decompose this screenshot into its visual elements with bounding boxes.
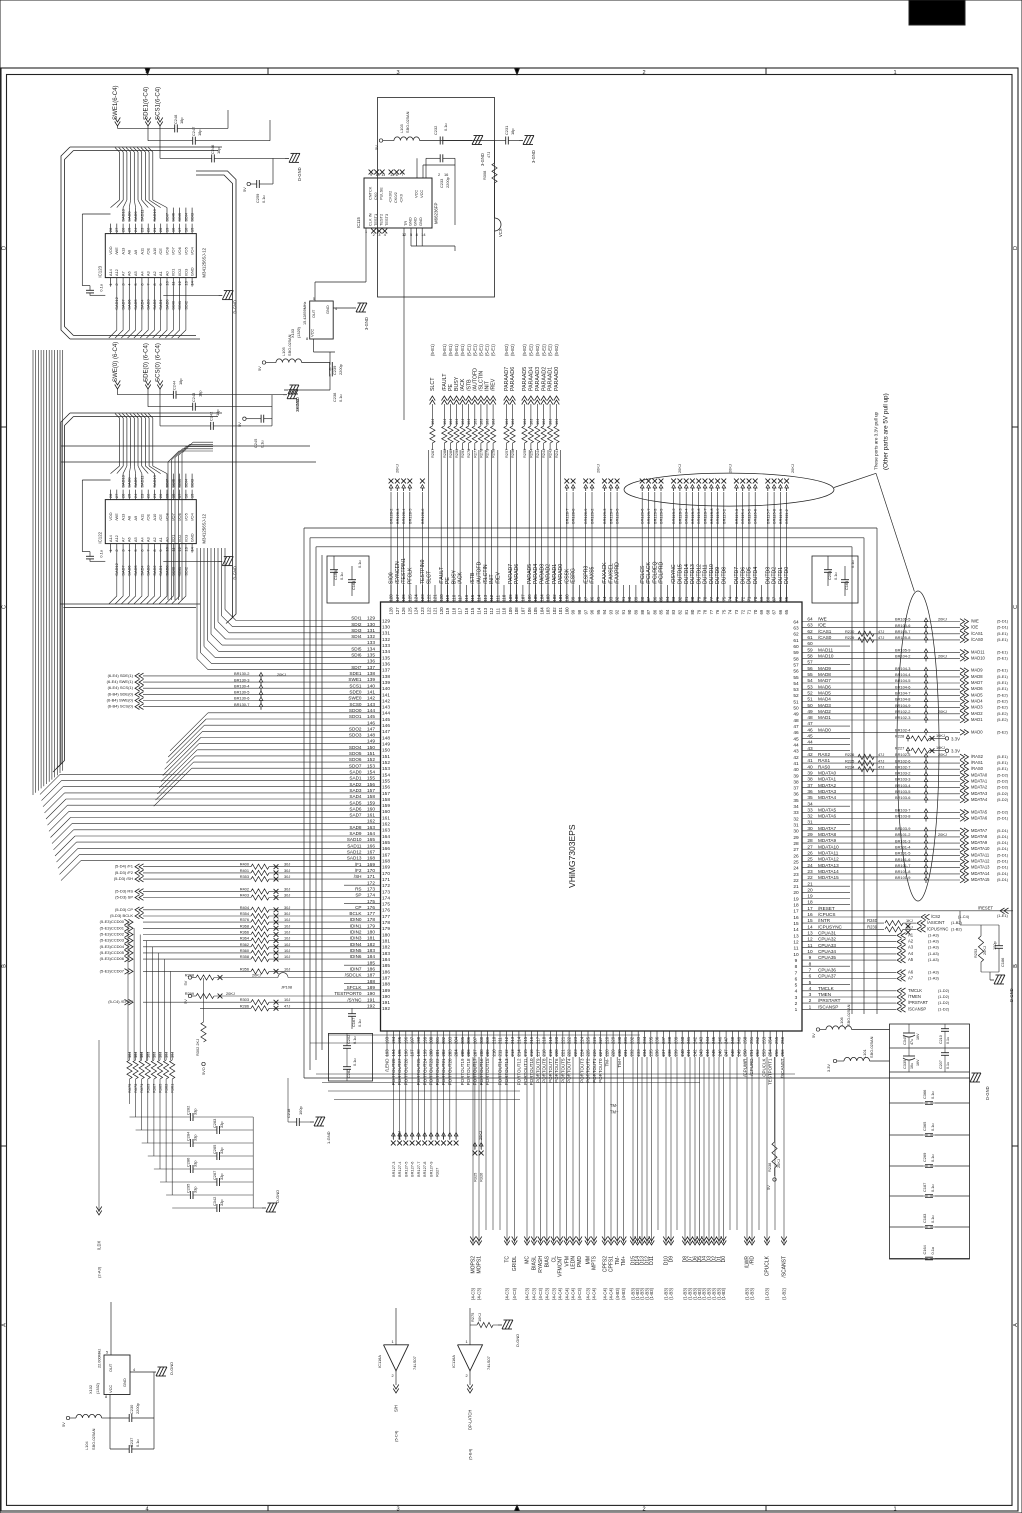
svg-text:(5-D3) CP: (5-D3) CP <box>115 907 133 912</box>
svg-text:/CSSK: /CSSK <box>564 568 570 584</box>
svg-text:/FAXSEL: /FAXSEL <box>608 563 614 584</box>
svg-text:D-GND: D-GND <box>169 1362 174 1375</box>
svg-text:34: 34 <box>793 804 799 810</box>
svg-text:33p: 33p <box>193 1187 198 1194</box>
svg-text:/CE: /CE <box>158 514 163 521</box>
svg-text:10J: 10J <box>466 419 471 425</box>
svg-text:20KJ: 20KJ <box>478 1131 483 1140</box>
svg-text:SDE1(6-C4): SDE1(6-C4) <box>143 87 150 120</box>
svg-text:PARAAD4: PARAAD4 <box>529 367 535 391</box>
svg-text:98: 98 <box>577 609 582 614</box>
svg-text:MAD4: MAD4 <box>971 699 983 704</box>
svg-text:L105: L105 <box>281 347 286 356</box>
svg-text:10J: 10J <box>284 942 290 947</box>
svg-text:CPUA32: CPUA32 <box>818 937 836 942</box>
svg-text:/SYNCEN: /SYNCEN <box>395 561 401 584</box>
svg-text:0.1u: 0.1u <box>261 195 266 203</box>
svg-text:CPUA37: CPUA37 <box>818 974 836 979</box>
svg-text:A12: A12 <box>114 269 119 276</box>
svg-text:PORTOUT6: PORTOUT6 <box>554 1058 559 1083</box>
svg-text:20KJ: 20KJ <box>727 464 732 473</box>
svg-text:A4: A4 <box>139 537 144 543</box>
svg-text:A8: A8 <box>127 516 132 521</box>
svg-text:(1-A3): (1-A3) <box>928 939 940 944</box>
svg-text:SLCT: SLCT <box>426 571 432 584</box>
svg-text:(1-A3): (1-A3) <box>928 957 940 962</box>
svg-text:R368: R368 <box>240 923 249 928</box>
svg-text:10J: 10J <box>510 419 515 425</box>
svg-text:(1-B2): (1-B2) <box>951 926 963 931</box>
svg-text:0.1u: 0.1u <box>443 123 448 131</box>
svg-text:(5-E1): (5-E1) <box>454 344 459 356</box>
svg-text:/ESRG: /ESRG <box>571 568 577 584</box>
svg-text:63: 63 <box>793 626 799 632</box>
svg-text:BR101-3: BR101-3 <box>895 838 910 843</box>
svg-text:SDO4: SDO4 <box>349 745 362 750</box>
svg-text:BR104-6: BR104-6 <box>895 684 910 689</box>
svg-text:67: 67 <box>772 609 777 614</box>
svg-text:CPUA33: CPUA33 <box>818 943 836 948</box>
svg-text:DUTD4: DUTD4 <box>753 567 759 584</box>
svg-text:A1: A1 <box>908 932 914 937</box>
svg-text:MAD0: MAD0 <box>818 727 831 732</box>
svg-text:SDO7: SDO7 <box>349 763 362 768</box>
svg-text:IC123: IC123 <box>97 265 102 277</box>
svg-text:BR115-6: BR115-6 <box>753 509 758 524</box>
svg-text:SWE1: SWE1 <box>348 677 362 682</box>
svg-text:VDD: VDD <box>108 246 113 254</box>
svg-text:C246: C246 <box>210 145 215 154</box>
svg-text:186: 186 <box>382 969 390 975</box>
svg-text:113: 113 <box>483 607 488 614</box>
svg-text:154: 154 <box>382 772 390 778</box>
svg-text:148: 148 <box>382 735 390 741</box>
svg-text:143: 143 <box>382 705 390 711</box>
svg-text:47u: 47u <box>910 1039 914 1045</box>
svg-text:SAD1: SAD1 <box>349 776 362 781</box>
svg-text:(5-E1): (5-E1) <box>460 344 465 356</box>
svg-text:(5-D3) SP: (5-D3) SP <box>115 895 133 900</box>
svg-text:18p: 18p <box>197 130 202 137</box>
svg-text:62: 62 <box>793 632 799 638</box>
svg-text:(1-A3): (1-A3) <box>928 945 940 950</box>
svg-text:R229: R229 <box>845 635 854 640</box>
svg-text:MAD6: MAD6 <box>818 684 831 689</box>
svg-text:R403: R403 <box>240 893 249 898</box>
svg-text:C186: C186 <box>1000 958 1005 967</box>
svg-text:SP: SP <box>355 893 361 898</box>
svg-text:BR102-3: BR102-3 <box>895 715 910 720</box>
svg-text:TM-: TM- <box>604 1058 609 1066</box>
svg-text:9: 9 <box>795 958 798 964</box>
svg-text:PARAAD0: PARAAD0 <box>554 367 560 391</box>
svg-text:SCS1(6-C4): SCS1(6-C4) <box>155 87 162 120</box>
svg-text:10KJ: 10KJ <box>936 733 945 738</box>
svg-text:DUTD3: DUTD3 <box>765 567 771 584</box>
svg-text:/PRSTART: /PRSTART <box>908 1000 929 1005</box>
svg-text:10J: 10J <box>158 1052 163 1058</box>
svg-text:/WE: /WE <box>114 247 119 255</box>
svg-text:R224: R224 <box>845 764 855 769</box>
svg-text:(4-C4): (4-C4) <box>592 1287 597 1300</box>
svg-text:1KJ: 1KJ <box>906 918 913 923</box>
svg-text:MAD0: MAD0 <box>971 729 983 734</box>
svg-text:/PCLACK: /PCLACK <box>646 562 652 584</box>
svg-text:84: 84 <box>665 609 670 614</box>
svg-text:/FAXACK: /FAXACK <box>602 562 608 584</box>
svg-text:A8: A8 <box>127 250 132 255</box>
svg-text:(5-E3)CCD00: (5-E3)CCD00 <box>100 919 125 924</box>
svg-text:68: 68 <box>765 609 770 614</box>
svg-text:(5-E2): (5-E2) <box>522 344 527 356</box>
svg-text:SAD13: SAD13 <box>347 856 362 861</box>
svg-text:BR103-6: BR103-6 <box>895 795 910 800</box>
svg-text:MDATA6: MDATA6 <box>971 816 988 821</box>
svg-text:MPTS: MPTS <box>592 1255 598 1270</box>
svg-text:RYASH: RYASH <box>538 1256 544 1273</box>
svg-text:SAD3: SAD3 <box>349 788 362 793</box>
svg-text:30J: 30J <box>284 874 290 879</box>
svg-text:A1: A1 <box>158 271 163 276</box>
svg-text:MDATA11: MDATA11 <box>818 851 839 856</box>
svg-text:5: 5 <box>795 983 798 989</box>
svg-text:100: 100 <box>564 607 569 615</box>
svg-text:R228: R228 <box>895 733 904 738</box>
svg-text:4: 4 <box>145 70 148 76</box>
svg-text:(5-E2): (5-E2) <box>548 344 553 356</box>
svg-text:SCS1: SCS1 <box>349 683 362 688</box>
svg-text:120: 120 <box>439 607 444 615</box>
svg-text:(1-E1): (1-E1) <box>997 913 1009 918</box>
svg-text:110: 110 <box>502 607 507 614</box>
svg-text:(5-E3)CCD02: (5-E3)CCD02 <box>100 932 125 937</box>
svg-text:10J: 10J <box>133 1052 138 1058</box>
svg-text:1: 1 <box>795 1007 798 1013</box>
svg-text:R253: R253 <box>973 949 978 958</box>
svg-text:(5-D1): (5-D1) <box>997 877 1009 882</box>
svg-text:DUTD15: DUTD15 <box>678 564 684 584</box>
svg-text:179: 179 <box>382 926 390 932</box>
svg-text:BR115-2: BR115-2 <box>721 509 726 524</box>
svg-text:/RAS1: /RAS1 <box>971 760 984 765</box>
svg-text:R366: R366 <box>240 930 249 935</box>
svg-text:1-GND: 1-GND <box>326 1131 331 1144</box>
svg-text:IC116A: IC116A <box>377 1355 382 1368</box>
svg-text:58: 58 <box>793 656 799 662</box>
svg-text:OUT: OUT <box>311 309 316 318</box>
svg-text:112: 112 <box>489 607 494 614</box>
svg-text:(1-B2): (1-B2) <box>951 920 963 925</box>
svg-text:18p: 18p <box>216 148 221 155</box>
svg-text:BR129-3: BR129-3 <box>602 509 607 524</box>
svg-text:(6-E4) SWE(1): (6-E4) SWE(1) <box>107 679 134 684</box>
svg-text:/STB: /STB <box>470 572 476 584</box>
svg-text:BR129-4: BR129-4 <box>608 508 613 524</box>
svg-text:BR103-2: BR103-2 <box>895 771 910 776</box>
svg-text:/FAULT: /FAULT <box>439 567 445 584</box>
svg-text:10J: 10J <box>139 1052 144 1058</box>
svg-text:R358: R358 <box>240 954 249 959</box>
svg-text:R289: R289 <box>448 449 453 458</box>
svg-text:10J: 10J <box>164 1052 169 1058</box>
svg-text:(5-D1): (5-D1) <box>997 816 1009 821</box>
svg-text:A5: A5 <box>133 537 138 542</box>
svg-text:53: 53 <box>793 687 799 693</box>
svg-text:33p: 33p <box>193 1161 198 1168</box>
svg-text:VFMCNT: VFMCNT <box>558 1256 564 1277</box>
svg-text:0.1u: 0.1u <box>135 1439 140 1447</box>
svg-text:(5-E2): (5-E2) <box>997 717 1009 722</box>
svg-text:SAD9: SAD9 <box>349 831 362 836</box>
svg-text:M341256SJ-12: M341256SJ-12 <box>201 513 206 543</box>
svg-text:DUTD8: DUTD8 <box>721 567 727 584</box>
svg-text:C283: C283 <box>212 1119 217 1128</box>
svg-text:3-GND: 3-GND <box>531 150 536 163</box>
svg-text:R302 2KJ: R302 2KJ <box>195 1039 200 1056</box>
svg-text:R303: R303 <box>240 997 249 1002</box>
svg-text:7: 7 <box>795 970 798 976</box>
svg-text:I/O8: I/O8 <box>164 513 169 520</box>
svg-text:R225: R225 <box>845 758 854 763</box>
svg-text:138: 138 <box>382 674 390 680</box>
svg-text:SAD0: SAD0 <box>349 770 362 775</box>
svg-text:139: 139 <box>382 680 390 686</box>
svg-text:(5-E2): (5-E2) <box>529 344 534 356</box>
svg-text:125: 125 <box>407 607 412 615</box>
svg-text:C237: C237 <box>129 1438 134 1447</box>
svg-text:SDE(0) (6-C4): SDE(0) (6-C4) <box>143 343 150 382</box>
svg-text:30J: 30J <box>284 886 290 891</box>
svg-text:R255: R255 <box>522 449 527 458</box>
svg-text:R258: R258 <box>491 449 496 458</box>
svg-text:106: 106 <box>527 607 532 615</box>
svg-text:131: 131 <box>382 631 390 637</box>
svg-text:92: 92 <box>615 609 620 614</box>
svg-text:BR128-6: BR128-6 <box>420 509 425 524</box>
svg-text:A: A <box>1 1323 7 1327</box>
svg-text:(1-B3): (1-B3) <box>750 1287 755 1299</box>
svg-text:IDIN1: IDIN1 <box>350 923 362 928</box>
svg-text:BR130-5: BR130-5 <box>234 690 249 695</box>
svg-text:/ACK: /ACK <box>460 378 466 391</box>
svg-text:155: 155 <box>382 779 390 785</box>
svg-text:10J: 10J <box>478 419 483 425</box>
svg-text:D-GND: D-GND <box>232 566 237 580</box>
svg-text:10J: 10J <box>548 419 553 425</box>
svg-text:135: 135 <box>382 655 390 661</box>
svg-text:C245: C245 <box>253 439 258 448</box>
svg-text:PORTOUT7: PORTOUT7 <box>548 1058 553 1083</box>
svg-text:C282: C282 <box>186 1106 191 1115</box>
svg-text:SAD12: SAD12 <box>347 850 362 855</box>
svg-text:MDATA8: MDATA8 <box>971 834 988 839</box>
svg-text:/CAS0: /CAS0 <box>971 637 984 642</box>
svg-text:BR104-9: BR104-9 <box>895 703 910 708</box>
svg-text:10J: 10J <box>491 419 496 425</box>
svg-text:D-GND: D-GND <box>232 300 237 314</box>
svg-text:30J: 30J <box>284 911 290 916</box>
svg-text:/STB: /STB <box>466 379 472 391</box>
svg-text:18p: 18p <box>178 379 183 386</box>
svg-text:180: 180 <box>382 932 390 938</box>
svg-text:16: 16 <box>793 915 799 921</box>
svg-text:(5-D2): (5-D2) <box>997 791 1009 796</box>
svg-text:R279: R279 <box>485 449 490 458</box>
svg-text:18p: 18p <box>215 410 220 417</box>
svg-text:82: 82 <box>678 609 683 614</box>
svg-text:/OSYNC: /OSYNC <box>671 564 677 584</box>
svg-text:BUSY: BUSY <box>454 376 460 391</box>
svg-text:10KJ: 10KJ <box>936 745 945 750</box>
svg-text:PORTOUT9: PORTOUT9 <box>535 1058 540 1083</box>
svg-text:(5-D3) RS: (5-D3) RS <box>115 888 133 893</box>
svg-text:MDATA4: MDATA4 <box>971 797 988 802</box>
svg-text:66: 66 <box>778 609 783 614</box>
svg-text:141: 141 <box>382 692 390 698</box>
svg-text:R299: R299 <box>185 991 194 996</box>
svg-text:47J: 47J <box>878 635 884 640</box>
svg-text:R227: R227 <box>895 746 904 751</box>
svg-text:MDATA10: MDATA10 <box>818 844 839 849</box>
svg-text:/CPUSYNC: /CPUSYNC <box>818 924 843 929</box>
svg-text:(5-D2): (5-D2) <box>997 809 1009 814</box>
svg-text:10J: 10J <box>430 419 435 425</box>
svg-text:185: 185 <box>382 963 390 969</box>
svg-text:10J: 10J <box>485 419 490 425</box>
svg-text:/SCANSP: /SCANSP <box>818 1004 838 1009</box>
svg-text:I/O1: I/O1 <box>171 269 176 276</box>
svg-text:3.3V: 3.3V <box>951 736 960 741</box>
svg-text:OUT: OUT <box>108 1363 113 1372</box>
svg-text:/RD: /RD <box>750 1256 756 1265</box>
svg-text:B: B <box>1 964 7 968</box>
svg-text:/SCANST: /SCANST <box>780 1058 785 1078</box>
svg-text:97: 97 <box>583 609 588 614</box>
svg-text:A13: A13 <box>121 248 126 255</box>
svg-text:101: 101 <box>558 607 563 615</box>
svg-text:PORTOUT3: PORTOUT3 <box>579 1058 584 1083</box>
svg-text:IDIN0: IDIN0 <box>350 917 362 922</box>
svg-text:R353: R353 <box>240 874 249 879</box>
svg-text:(5-E1): (5-E1) <box>448 344 453 356</box>
svg-text:44: 44 <box>793 743 799 749</box>
svg-text:C202: C202 <box>346 1035 351 1044</box>
svg-text:0.1u: 0.1u <box>946 1037 950 1044</box>
svg-text:A11: A11 <box>139 514 144 521</box>
svg-text:R226: R226 <box>845 752 854 757</box>
svg-text:MAD9: MAD9 <box>971 668 983 673</box>
svg-text:10J: 10J <box>528 419 533 425</box>
svg-text:177: 177 <box>382 914 390 920</box>
svg-text:C238: C238 <box>332 393 337 402</box>
svg-text:PORTOUT19: PORTOUT19 <box>460 1058 465 1085</box>
svg-text:16: 16 <box>444 172 448 177</box>
svg-text:183: 183 <box>382 951 390 957</box>
svg-text:(5-D3) /F2: (5-D3) /F2 <box>115 870 134 875</box>
svg-text:SWE(0) (6-C4): SWE(0) (6-C4) <box>112 342 119 382</box>
svg-text:MAD1: MAD1 <box>971 717 983 722</box>
svg-text:MDATA14: MDATA14 <box>818 869 839 874</box>
svg-text:54: 54 <box>793 681 799 687</box>
svg-text:129: 129 <box>382 618 390 624</box>
svg-text:(5-E2): (5-E2) <box>997 699 1009 704</box>
svg-text:C232: C232 <box>433 126 438 135</box>
svg-text:SDE0: SDE0 <box>349 690 362 695</box>
svg-text:/CPUSYNC: /CPUSYNC <box>927 926 948 931</box>
svg-text:95: 95 <box>596 609 601 614</box>
svg-text:1: 1 <box>392 1339 394 1344</box>
svg-text:VCX: VCX <box>498 228 503 237</box>
svg-text:PORTOUT10: PORTOUT10 <box>529 1058 534 1085</box>
svg-text:3-GND: 3-GND <box>480 153 485 166</box>
svg-text:/SDCLK: /SDCLK <box>345 973 363 978</box>
svg-text:A4: A4 <box>139 271 144 277</box>
svg-text:(5-E2): (5-E2) <box>510 344 515 356</box>
svg-text:18p: 18p <box>510 129 515 136</box>
svg-text:175: 175 <box>382 902 390 908</box>
svg-text:INIT: INIT <box>489 574 495 584</box>
svg-text:MDATA5: MDATA5 <box>971 809 988 814</box>
svg-text:PARAAD2: PARAAD2 <box>541 367 547 391</box>
svg-text:C1B8: C1B8 <box>333 570 338 580</box>
svg-text:20KJ: 20KJ <box>938 752 947 757</box>
svg-text:C366: C366 <box>922 1090 927 1099</box>
svg-text:MOPS1: MOPS1 <box>477 1256 483 1274</box>
svg-text:10J: 10J <box>127 1052 132 1058</box>
svg-text:C242: C242 <box>209 412 214 421</box>
svg-text:TESTPORT1: TESTPORT1 <box>768 1058 773 1085</box>
svg-text:BR129-6: BR129-6 <box>640 509 645 524</box>
svg-text:(4-C4): (4-C4) <box>602 1287 607 1300</box>
svg-text:I/O3: I/O3 <box>183 535 188 542</box>
svg-text:72: 72 <box>740 609 745 614</box>
svg-text:TMEN: TMEN <box>818 992 831 997</box>
svg-text:20KJ: 20KJ <box>277 672 286 677</box>
svg-text:(4-B3): (4-B3) <box>621 1287 626 1299</box>
svg-text:C243: C243 <box>191 393 196 402</box>
svg-text:(5-D1): (5-D1) <box>997 625 1009 630</box>
svg-text:MAD11: MAD11 <box>818 647 834 652</box>
svg-text:/FAXPRD: /FAXPRD <box>615 562 621 584</box>
svg-text:CL: CL <box>551 1256 557 1263</box>
svg-text:MDATA9: MDATA9 <box>971 840 988 845</box>
svg-text:C295: C295 <box>186 1184 191 1193</box>
svg-text:SAD8: SAD8 <box>349 825 362 830</box>
svg-text:R354: R354 <box>240 911 250 916</box>
svg-text:A6: A6 <box>127 271 132 276</box>
svg-text:2200p: 2200p <box>338 364 343 375</box>
svg-text:47J: 47J <box>878 629 884 634</box>
svg-text:MAD3: MAD3 <box>818 703 831 708</box>
svg-text:D9: D9 <box>669 1256 675 1263</box>
svg-text:SDI4: SDI4 <box>351 634 362 639</box>
svg-text:C: C <box>1 605 7 609</box>
svg-text:D0: D0 <box>721 1256 727 1263</box>
svg-text:0.1u: 0.1u <box>930 1091 935 1099</box>
svg-text:(5-D1): (5-D1) <box>997 834 1009 839</box>
svg-text:3.3V: 3.3V <box>951 749 960 754</box>
svg-text:(5-D1): (5-D1) <box>997 865 1009 870</box>
svg-text:VFM: VFM <box>564 1256 570 1267</box>
svg-text:10J: 10J <box>170 1052 175 1058</box>
svg-text:0.1u: 0.1u <box>338 394 343 402</box>
svg-text:(4-C3): (4-C3) <box>577 1287 582 1300</box>
svg-text:0.1u: 0.1u <box>850 560 855 568</box>
svg-text:C163: C163 <box>844 581 849 590</box>
svg-text:(4-C3): (4-C3) <box>512 1287 517 1300</box>
svg-text:CP: CP <box>355 905 361 910</box>
svg-text:(5-D1): (5-D1) <box>997 871 1009 876</box>
